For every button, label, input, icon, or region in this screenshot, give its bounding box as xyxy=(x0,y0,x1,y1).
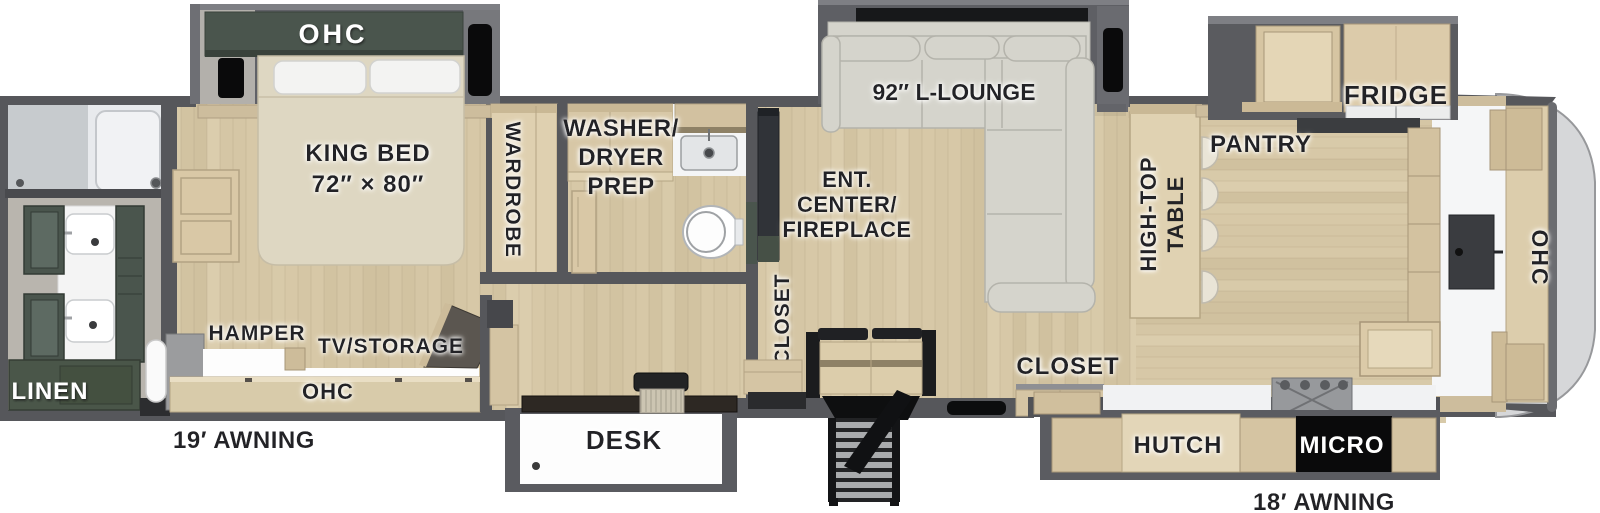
svg-text:TABLE: TABLE xyxy=(1163,176,1188,253)
svg-text:HUTCH: HUTCH xyxy=(1134,432,1223,459)
svg-text:MICRO: MICRO xyxy=(1300,432,1385,459)
svg-text:OHC: OHC xyxy=(1527,229,1553,286)
svg-text:FIREPLACE: FIREPLACE xyxy=(782,217,911,242)
svg-text:72″ × 80″: 72″ × 80″ xyxy=(312,171,425,198)
svg-text:KING BED: KING BED xyxy=(305,140,430,167)
svg-text:PREP: PREP xyxy=(587,173,654,200)
svg-text:CENTER/: CENTER/ xyxy=(797,192,897,217)
svg-text:OHC: OHC xyxy=(302,379,354,404)
svg-text:WASHER/: WASHER/ xyxy=(563,115,679,142)
svg-text:ENT.: ENT. xyxy=(822,167,872,192)
svg-text:HAMPER: HAMPER xyxy=(208,322,305,345)
svg-text:HIGH-TOP: HIGH-TOP xyxy=(1136,156,1161,271)
svg-text:92″ L-LOUNGE: 92″ L-LOUNGE xyxy=(872,79,1035,105)
svg-text:18′ AWNING: 18′ AWNING xyxy=(1253,489,1395,513)
svg-text:OHC: OHC xyxy=(299,19,368,49)
svg-text:DRYER: DRYER xyxy=(578,144,664,171)
svg-text:PANTRY: PANTRY xyxy=(1210,131,1312,158)
svg-text:LINEN: LINEN xyxy=(12,378,89,405)
svg-text:CLOSET: CLOSET xyxy=(771,273,794,364)
svg-text:TV/STORAGE: TV/STORAGE xyxy=(318,335,464,358)
svg-text:FRIDGE: FRIDGE xyxy=(1344,80,1448,110)
svg-text:WARDROBE: WARDROBE xyxy=(501,122,524,259)
svg-text:CLOSET: CLOSET xyxy=(1016,353,1119,380)
svg-text:DESK: DESK xyxy=(586,425,662,455)
svg-text:19′ AWNING: 19′ AWNING xyxy=(173,427,315,454)
